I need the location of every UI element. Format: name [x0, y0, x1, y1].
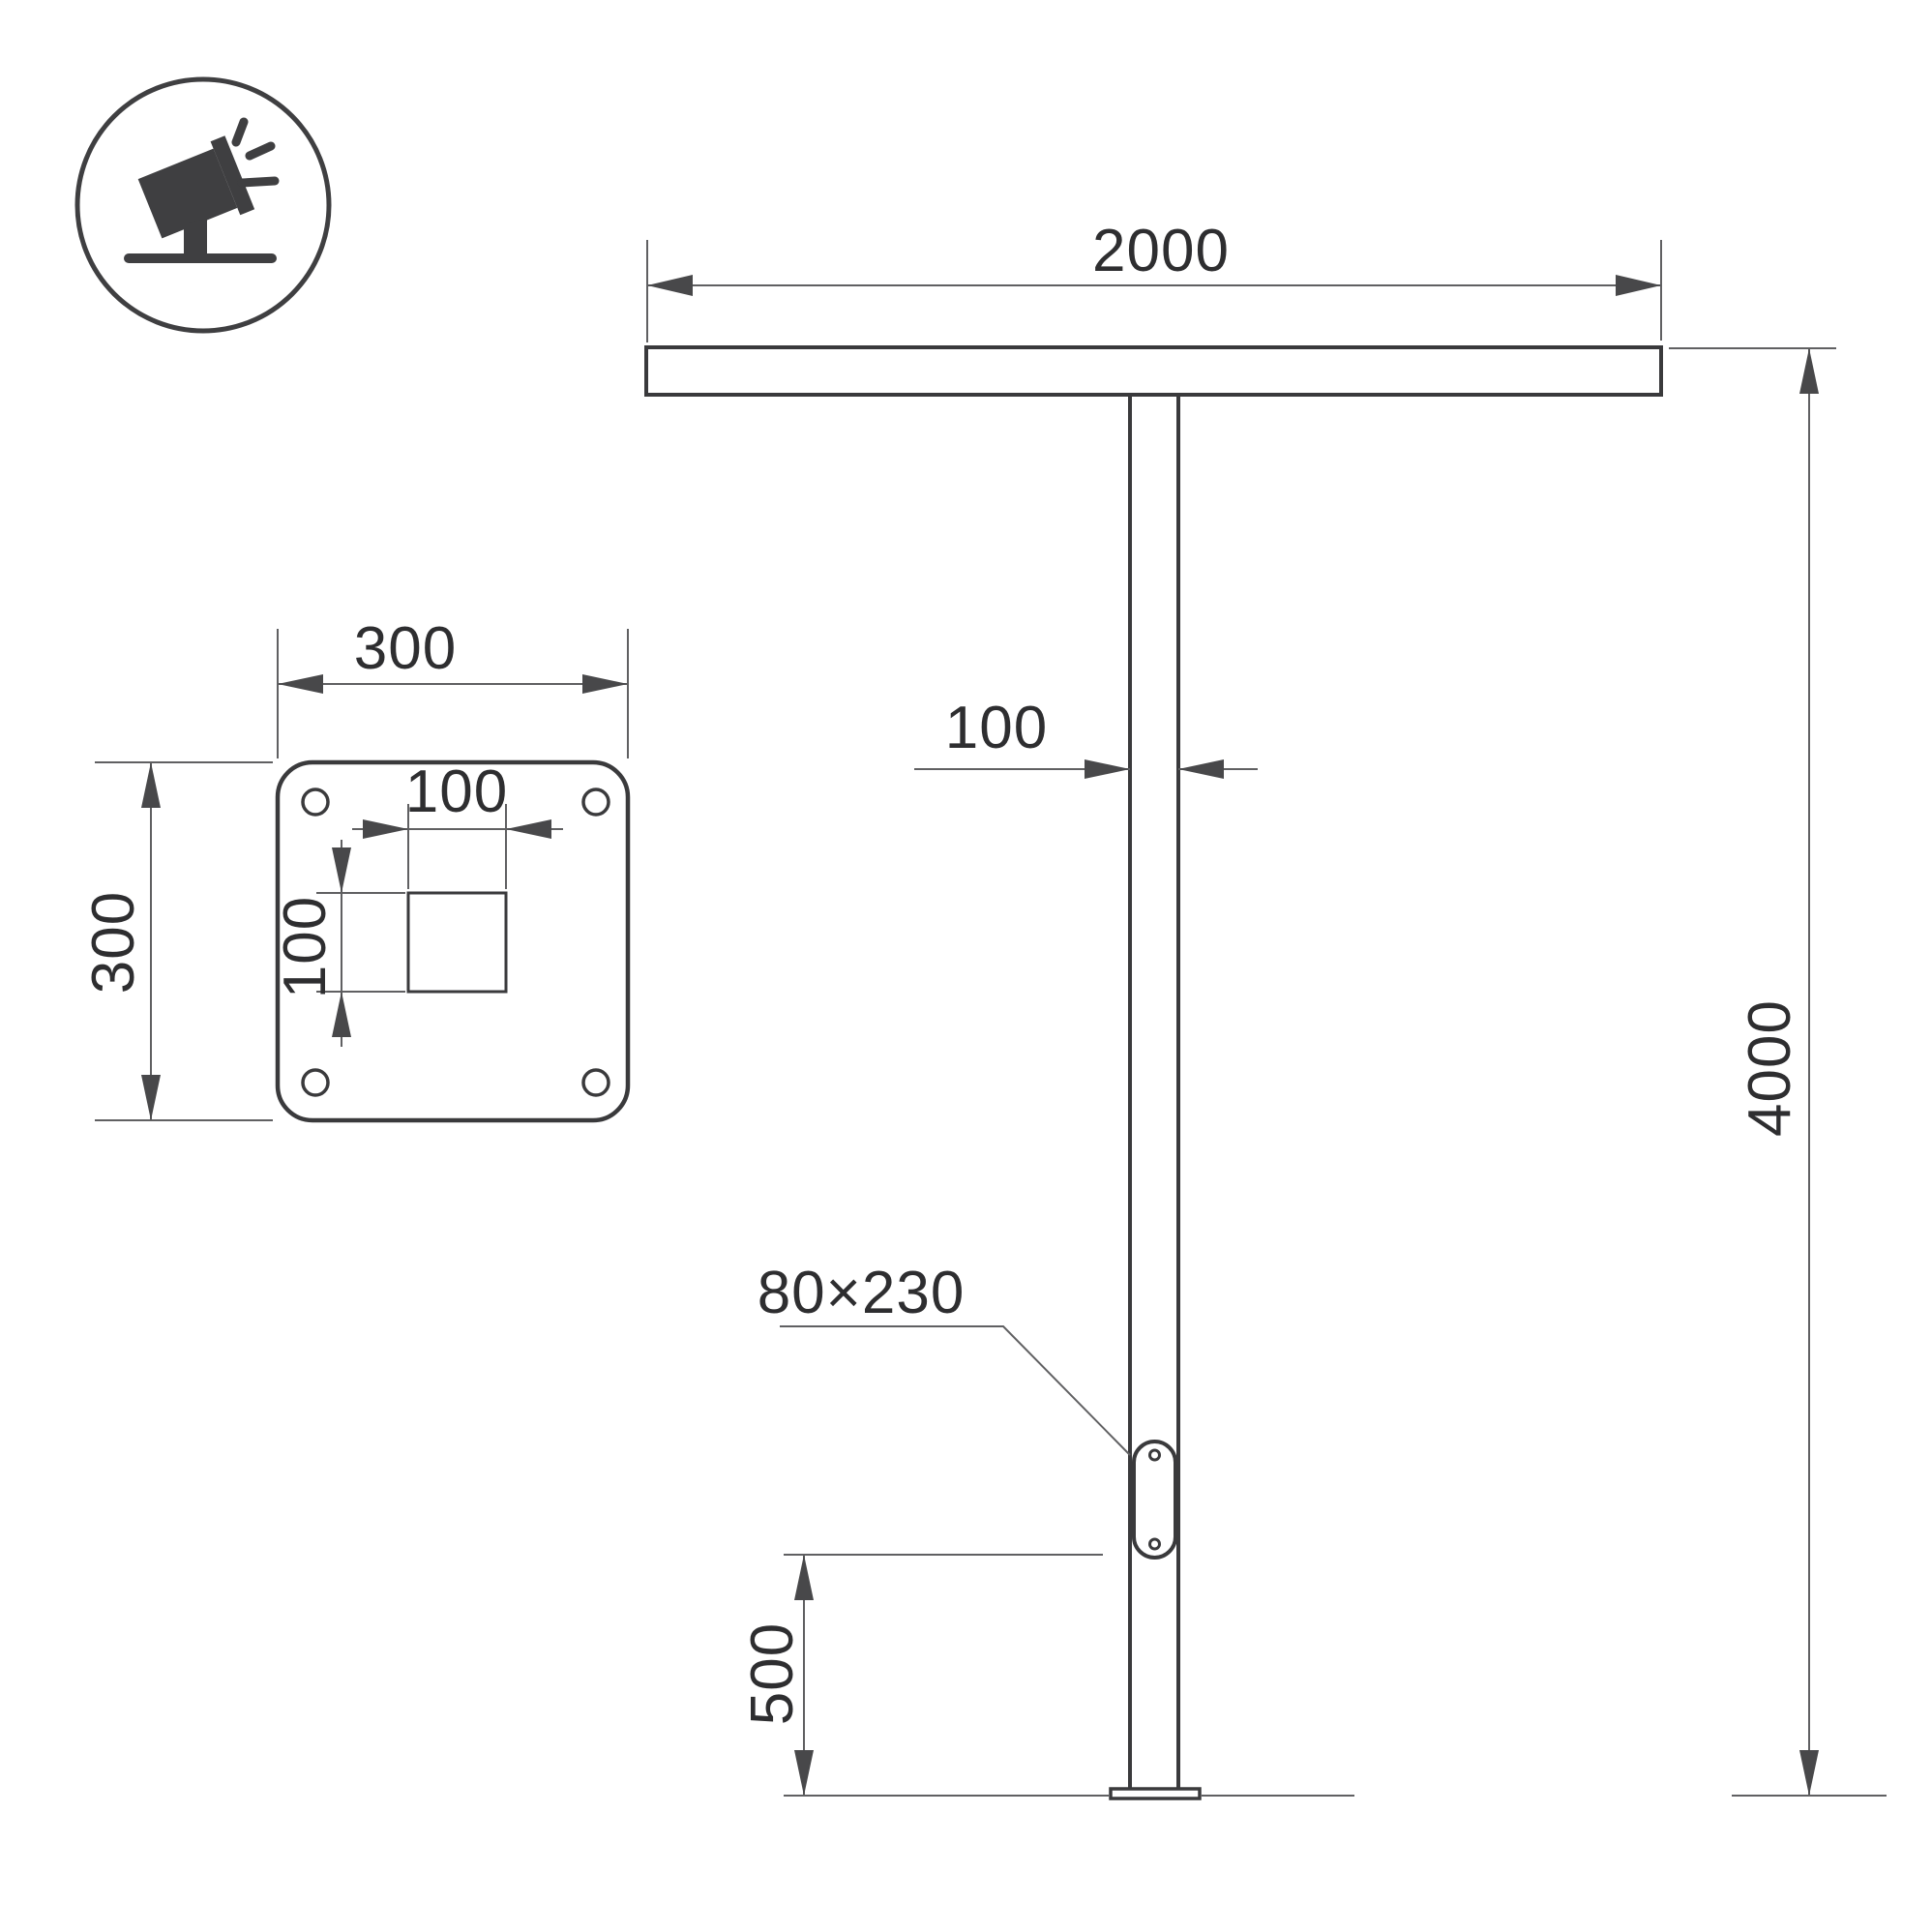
dim-hole-width-label: 100 [405, 762, 508, 822]
hatch-leader-line [780, 1326, 1130, 1455]
dim-plate-height-label: 300 [84, 891, 144, 994]
crossbar [646, 347, 1661, 395]
floodlight-icon [77, 79, 329, 331]
dim-hatch-height-label: 500 [743, 1622, 803, 1725]
dim-pole-width-label: 100 [945, 698, 1048, 758]
dim-hole-height-label: 100 [276, 896, 336, 998]
dim-hatch-height-lines [784, 1555, 1103, 1796]
base-flange [1111, 1789, 1200, 1798]
floodlight-stand [184, 219, 207, 257]
dim-pole-height-label: 4000 [1740, 999, 1800, 1137]
dim-plate-width-label: 300 [354, 619, 457, 679]
floodlight-base [124, 253, 277, 263]
drawing-canvas: 2000 100 4000 80×230 500 300 100 100 300 [0, 0, 1932, 1932]
hatch-size-label: 80×230 [758, 1263, 966, 1323]
base-plate-plan [95, 629, 628, 1120]
light-rays-icon [236, 122, 275, 183]
dim-pole-width-arrows [1085, 759, 1224, 779]
pole-elevation [646, 240, 1887, 1798]
dim-crossbar-width-label: 2000 [1092, 222, 1230, 282]
